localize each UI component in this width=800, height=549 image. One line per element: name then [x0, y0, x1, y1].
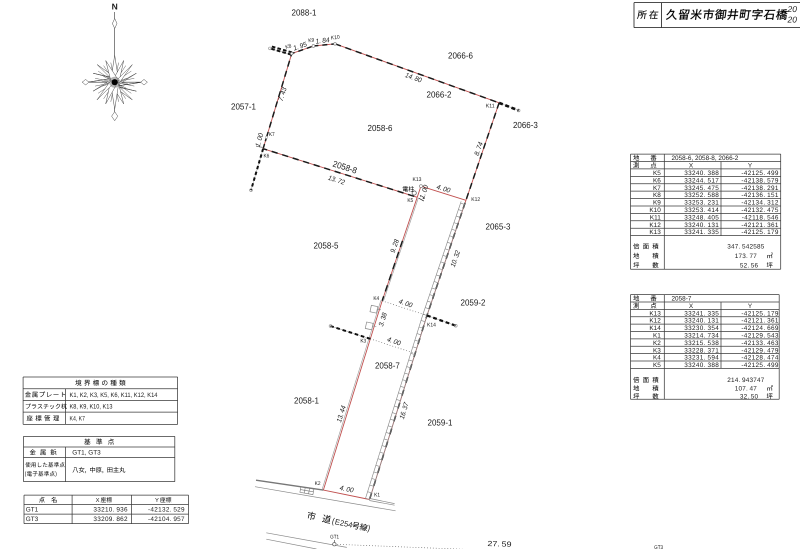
svg-text:GT1: GT1	[330, 535, 339, 541]
svg-text:-42121. 361: -42121. 361	[741, 222, 779, 229]
svg-text:33253. 231: 33253. 231	[684, 200, 719, 207]
svg-text:GT1, GT3: GT1, GT3	[72, 450, 101, 457]
svg-text:-42134. 312: -42134. 312	[741, 200, 779, 207]
svg-text:K11: K11	[650, 214, 661, 221]
svg-text:7. 43: 7. 43	[278, 87, 289, 103]
svg-text:K6: K6	[263, 154, 269, 160]
svg-text:-42129. 543: -42129. 543	[741, 332, 779, 339]
svg-text:Y: Y	[748, 303, 753, 310]
svg-text:-42124. 669: -42124. 669	[741, 325, 779, 332]
svg-text:K3: K3	[653, 347, 661, 354]
svg-text:2059-1: 2059-1	[428, 417, 453, 427]
svg-text:2058-5: 2058-5	[314, 241, 339, 251]
svg-text:2088-1: 2088-1	[292, 7, 317, 17]
svg-text:33253. 414: 33253. 414	[684, 207, 719, 214]
svg-text:K14: K14	[427, 323, 436, 329]
svg-text:32. 50: 32. 50	[740, 394, 759, 401]
svg-text:33209. 862: 33209. 862	[93, 516, 128, 523]
svg-text:E254: E254	[334, 517, 353, 529]
svg-text:33215. 538: 33215. 538	[684, 340, 719, 347]
svg-text:33230. 354: 33230. 354	[684, 325, 719, 332]
svg-text:K5: K5	[407, 198, 413, 204]
svg-text:-42104. 957: -42104. 957	[148, 516, 185, 523]
svg-text:4. 00: 4. 00	[339, 485, 354, 495]
svg-text:33240. 131: 33240. 131	[684, 318, 719, 325]
svg-text:33240. 131: 33240. 131	[684, 222, 719, 229]
svg-text:-42132. 475: -42132. 475	[741, 207, 779, 214]
svg-text:K2: K2	[315, 481, 321, 487]
svg-text:K8: K8	[285, 43, 293, 51]
svg-text:-42133. 463: -42133. 463	[741, 340, 779, 347]
svg-text:27. 59: 27. 59	[487, 539, 511, 549]
svg-text:K6: K6	[653, 177, 661, 184]
svg-text:K10: K10	[649, 207, 661, 214]
svg-text:-42138. 579: -42138. 579	[741, 177, 779, 184]
svg-text:K9: K9	[308, 38, 315, 45]
svg-text:347. 542585: 347. 542585	[727, 244, 764, 251]
svg-text:K2: K2	[653, 340, 661, 347]
svg-text:-42136. 151: -42136. 151	[741, 192, 779, 199]
svg-text:GT3: GT3	[654, 545, 663, 549]
svg-text:K14: K14	[649, 325, 661, 332]
svg-text:-42128. 474: -42128. 474	[741, 355, 779, 362]
svg-text:33214. 734: 33214. 734	[684, 332, 719, 339]
svg-text:33231. 594: 33231. 594	[684, 355, 719, 362]
svg-text:K4, K7: K4, K7	[70, 416, 86, 423]
svg-text:Y: Y	[748, 163, 753, 170]
svg-text:2059-2: 2059-2	[461, 297, 486, 307]
svg-text:-42125. 179: -42125. 179	[741, 229, 779, 236]
svg-text:K3: K3	[360, 339, 366, 345]
svg-text:20: 20	[787, 4, 798, 14]
svg-text:13. 72: 13. 72	[327, 175, 346, 187]
svg-text:N: N	[112, 2, 118, 12]
svg-text:GT1: GT1	[26, 507, 39, 514]
svg-text:K10: K10	[331, 35, 341, 42]
svg-text:-42138. 291: -42138. 291	[741, 185, 779, 192]
svg-text:33244. 517: 33244. 517	[684, 177, 719, 184]
svg-text:2066-3: 2066-3	[513, 120, 538, 130]
svg-text:2058-6: 2058-6	[368, 123, 393, 133]
svg-text:K11: K11	[486, 103, 495, 109]
svg-text:9. 28: 9. 28	[390, 238, 401, 254]
svg-text:X: X	[689, 163, 694, 170]
svg-text:K1: K1	[374, 493, 380, 499]
svg-text:33241. 335: 33241. 335	[684, 229, 719, 236]
svg-text:33245. 475: 33245. 475	[684, 185, 719, 192]
svg-text:K9: K9	[653, 200, 661, 207]
svg-text:X: X	[96, 498, 100, 504]
svg-text:107. 47: 107. 47	[735, 386, 757, 393]
svg-text:13. 44: 13. 44	[336, 405, 348, 424]
svg-text:K12: K12	[471, 197, 480, 203]
svg-text:-42125. 499: -42125. 499	[741, 170, 779, 177]
svg-text:K5: K5	[653, 170, 661, 177]
svg-text:K4: K4	[653, 355, 661, 362]
svg-text:-42118. 546: -42118. 546	[742, 214, 779, 221]
svg-text:2066-2: 2066-2	[427, 90, 452, 100]
svg-text:K1, K2, K3, K5, K6, K11, K12,: K1, K2, K3, K5, K6, K11, K12, K14	[70, 392, 158, 399]
svg-text:K8, K9, K10, K13: K8, K9, K10, K13	[70, 404, 113, 411]
svg-text:K12: K12	[649, 318, 661, 325]
svg-text:-42132. 529: -42132. 529	[148, 507, 185, 514]
svg-text:K8: K8	[653, 192, 661, 199]
svg-text:3. 38: 3. 38	[378, 312, 389, 328]
svg-text:4. 00: 4. 00	[398, 298, 414, 309]
svg-text:16. 37: 16. 37	[399, 401, 411, 420]
svg-text:X: X	[689, 303, 694, 310]
svg-text:33248. 405: 33248. 405	[684, 214, 719, 221]
svg-text:2057-1: 2057-1	[231, 101, 256, 111]
svg-text:Y: Y	[155, 498, 159, 504]
svg-text:173. 77: 173. 77	[735, 253, 757, 260]
svg-text:-42129. 479: -42129. 479	[741, 347, 779, 354]
svg-text:2058-7: 2058-7	[375, 361, 400, 371]
svg-text:20: 20	[787, 15, 798, 25]
svg-text:52. 56: 52. 56	[740, 263, 759, 270]
svg-text:4. 00: 4. 00	[386, 336, 402, 347]
svg-text:2058-7: 2058-7	[672, 296, 692, 303]
svg-text:33210. 936: 33210. 936	[93, 507, 128, 514]
svg-text:K13: K13	[649, 310, 661, 317]
svg-text:K7: K7	[653, 185, 661, 192]
svg-text:2066-6: 2066-6	[448, 50, 473, 60]
svg-text:10. 32: 10. 32	[450, 250, 462, 269]
svg-text:K1: K1	[653, 332, 661, 339]
svg-text:2058-1: 2058-1	[294, 396, 319, 406]
svg-text:33241. 335: 33241. 335	[684, 310, 719, 317]
svg-text:33240. 388: 33240. 388	[684, 362, 719, 369]
svg-text:33228. 371: 33228. 371	[684, 347, 719, 354]
svg-text:K13: K13	[649, 229, 661, 236]
svg-text:214. 943747: 214. 943747	[727, 377, 764, 384]
svg-text:K12: K12	[649, 222, 661, 229]
svg-text:-42125. 179: -42125. 179	[741, 310, 779, 317]
svg-text:2058-8: 2058-8	[332, 159, 359, 176]
svg-text:K13: K13	[413, 177, 422, 183]
svg-text:GT3: GT3	[26, 516, 39, 523]
svg-text:-42121. 361: -42121. 361	[741, 318, 779, 325]
svg-text:33240. 388: 33240. 388	[684, 170, 719, 177]
svg-text:2058-6, 2058-8, 2066-2: 2058-6, 2058-8, 2066-2	[672, 155, 739, 162]
svg-text:2065-3: 2065-3	[486, 221, 511, 231]
svg-text:33252. 588: 33252. 588	[684, 192, 719, 199]
svg-text:K5: K5	[653, 362, 661, 369]
svg-text:K7: K7	[269, 132, 275, 138]
svg-text:-42125. 499: -42125. 499	[741, 362, 779, 369]
svg-text:K4: K4	[373, 296, 379, 302]
